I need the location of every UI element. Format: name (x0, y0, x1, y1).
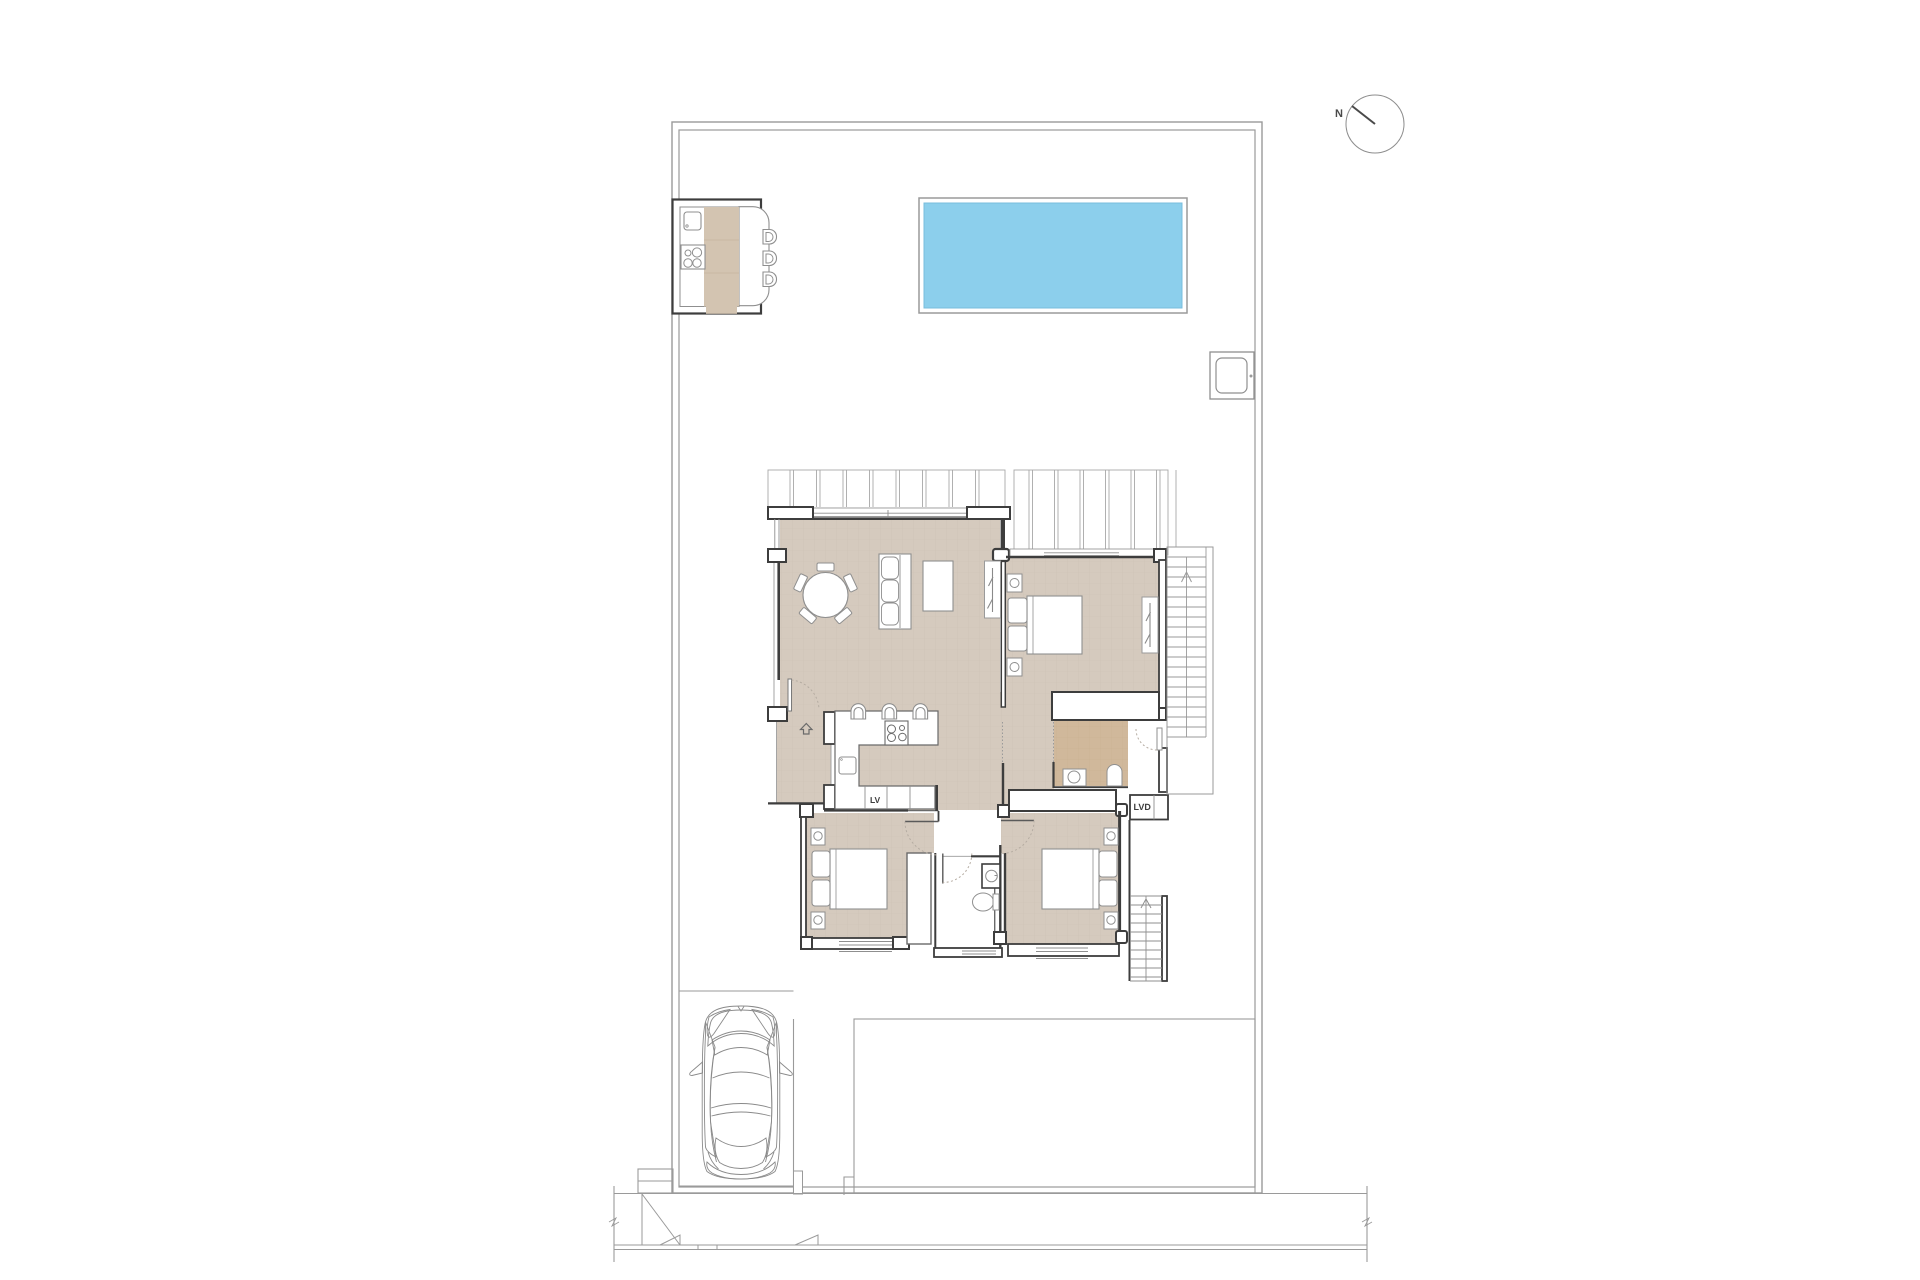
svg-text:LV: LV (870, 795, 881, 805)
svg-text:N: N (1335, 108, 1343, 120)
svg-text:LVD: LVD (1134, 802, 1152, 812)
